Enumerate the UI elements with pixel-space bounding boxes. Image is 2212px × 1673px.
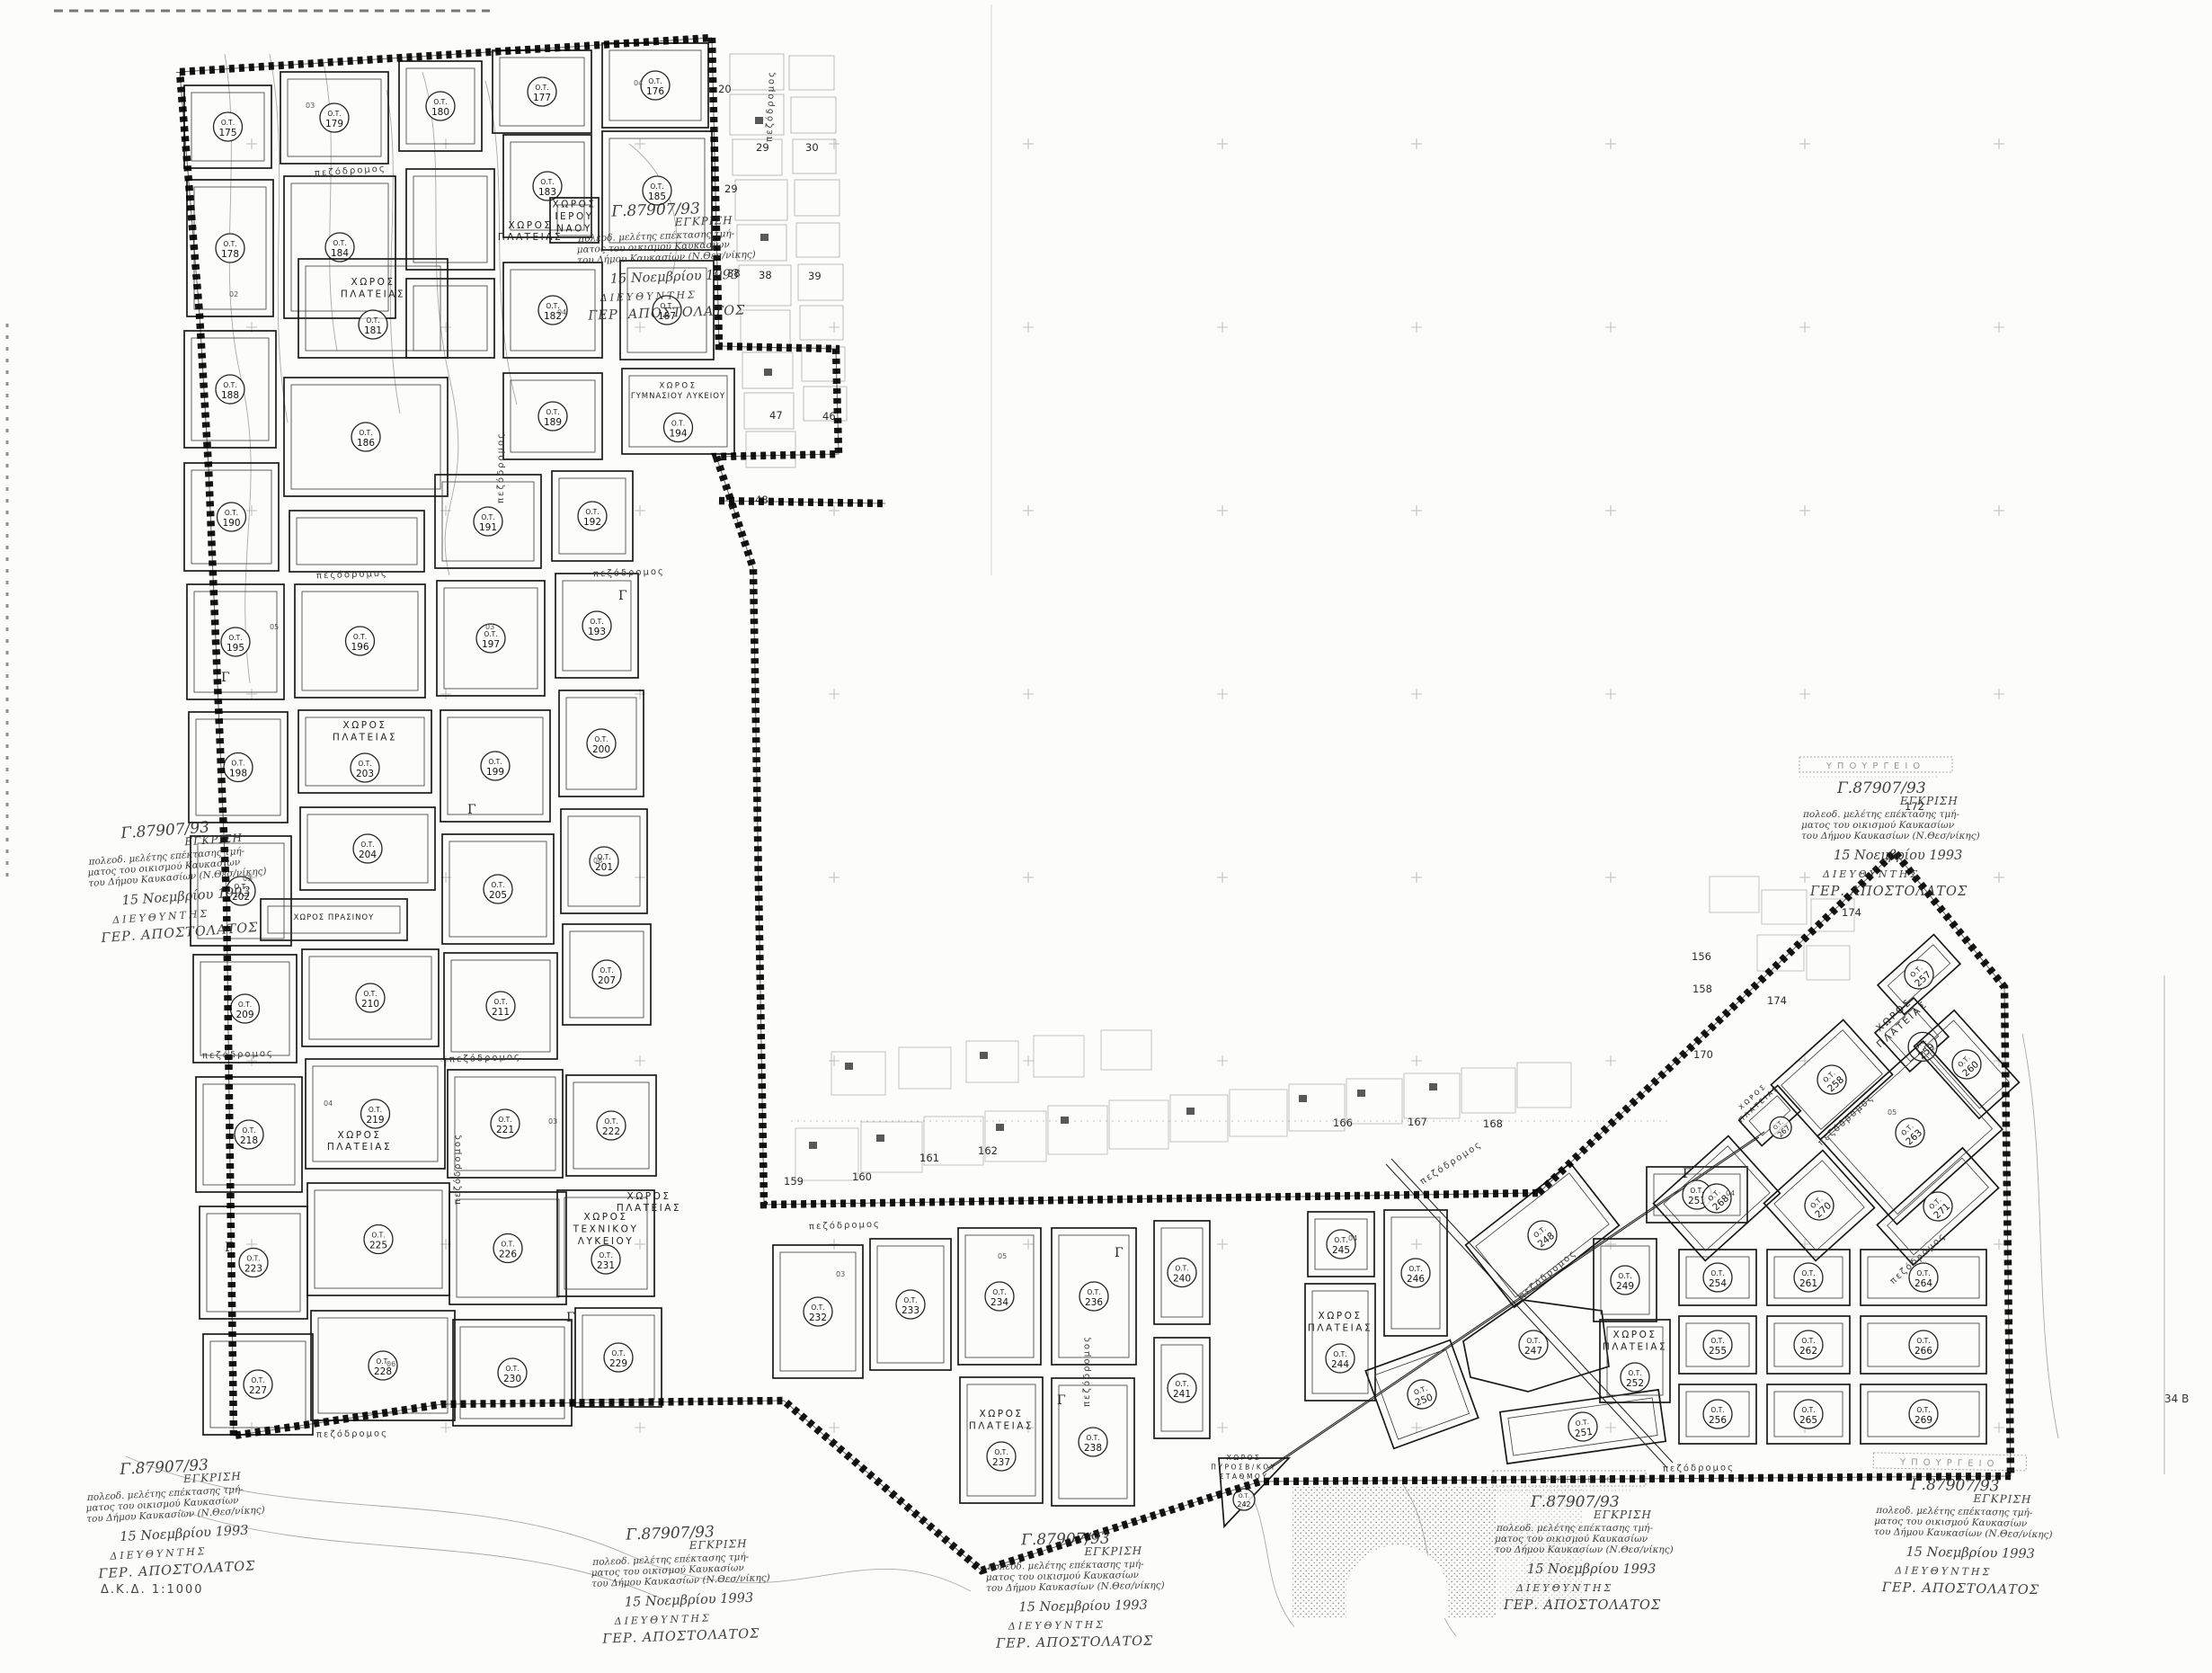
svg-text:Ο.Τ.: Ο.Τ.: [1710, 1337, 1724, 1345]
lot-number-mark: 06: [386, 1360, 395, 1368]
svg-text:Ο.Τ.: Ο.Τ.: [238, 1001, 252, 1009]
svg-text:177: 177: [533, 93, 551, 103]
scanned-town-plan-sheet: Ο.Τ.175Ο.Τ.179Ο.Τ.180Ο.Τ.177Ο.Τ.176Ο.Τ.1…: [0, 0, 2212, 1673]
svg-text:Ο.Τ.: Ο.Τ.: [333, 239, 346, 247]
block-number-badge: Ο.Τ.205: [484, 875, 512, 903]
svg-text:Ο.Τ.: Ο.Τ.: [1628, 1369, 1641, 1377]
area-label: ΠΛΑΤΕΙΑΣ: [327, 1142, 392, 1152]
svg-text:Ο.Τ.: Ο.Τ.: [225, 509, 238, 517]
existing-building: [845, 1063, 853, 1070]
map-canvas: Ο.Τ.175Ο.Τ.179Ο.Τ.180Ο.Τ.177Ο.Τ.176Ο.Τ.1…: [0, 0, 2212, 1673]
svg-text:193: 193: [588, 627, 606, 637]
block-number-badge: Ο.Τ.176: [641, 71, 670, 100]
block-number-badge: Ο.Τ.222: [597, 1111, 626, 1140]
block-number-badge: Ο.Τ.194: [664, 414, 693, 442]
block-number-badge: Ο.Τ.192: [578, 502, 607, 530]
existing-building: [980, 1052, 988, 1059]
svg-text:15 Νοεμβρίου 1993: 15 Νοεμβρίου 1993: [1906, 1544, 2035, 1562]
svg-text:15 Νοεμβρίου 1993: 15 Νοεμβρίου 1993: [1018, 1597, 1148, 1615]
svg-text:198: 198: [229, 769, 247, 779]
block-number-badge: Ο.Τ.262: [1794, 1330, 1823, 1359]
svg-text:Ο.Τ.: Ο.Τ.: [223, 381, 236, 389]
existing-building: [1186, 1108, 1195, 1115]
svg-text:222: 222: [602, 1126, 620, 1137]
block-number-badge: Ο.Τ.252: [1621, 1363, 1649, 1392]
block-number-badge: Ο.Τ.236: [1079, 1282, 1108, 1311]
svg-text:205: 205: [489, 890, 507, 901]
svg-text:190: 190: [222, 518, 240, 529]
plan-boundary-hatch: [719, 501, 885, 503]
svg-text:255: 255: [1709, 1346, 1727, 1357]
lot-number-mark: 05: [1888, 1108, 1897, 1117]
building-corner-mark: Γ: [1057, 1393, 1066, 1408]
svg-text:πολεοδ. μελέτης επέκτασης τμή-: πολεοδ. μελέτης επέκτασης τμή-: [1496, 1522, 1653, 1534]
area-label: ΙΕΡΟΥ: [555, 211, 593, 222]
svg-text:Ο.Τ.: Ο.Τ.: [1175, 1265, 1188, 1273]
svg-text:Ο.Τ.: Ο.Τ.: [600, 966, 613, 974]
area-label: ΠΛΑΤΕΙΑΣ: [341, 289, 405, 300]
block-number-badge: Ο.Τ.230: [498, 1358, 527, 1387]
area-label: ΧΩΡΟΣ: [351, 277, 395, 288]
area-label: ΠΥΡΟΣΒ/ΚΟΥ: [1211, 1464, 1276, 1472]
svg-text:254: 254: [1709, 1278, 1727, 1289]
svg-text:Ο.Τ.: Ο.Τ.: [648, 77, 662, 85]
svg-text:Ο.Τ.: Ο.Τ.: [585, 508, 599, 516]
building-corner-mark: Γ: [566, 1311, 575, 1325]
svg-text:226: 226: [499, 1250, 517, 1260]
svg-text:195: 195: [227, 643, 244, 654]
svg-text:Ο.Τ.: Ο.Τ.: [590, 618, 603, 626]
block-number-badge: Ο.Τ.237: [987, 1442, 1016, 1471]
svg-text:ΥΠΟΥΡΓΕΙΟ: ΥΠΟΥΡΓΕΙΟ: [1519, 1475, 1619, 1485]
svg-text:244: 244: [1331, 1359, 1349, 1370]
svg-text:Ο.Τ.: Ο.Τ.: [369, 1106, 382, 1114]
svg-text:194: 194: [669, 429, 687, 440]
svg-text:Ο.Τ.: Ο.Τ.: [1087, 1288, 1100, 1296]
svg-text:ΔΙΕΥΘΥΝΤΗΣ: ΔΙΕΥΘΥΝΤΗΣ: [1515, 1582, 1613, 1594]
block-number-badge: Ο.Τ.218: [235, 1120, 263, 1149]
block-number-badge: Ο.Τ.210: [356, 983, 385, 1012]
lot-number-mark: 08: [593, 857, 602, 865]
svg-text:175: 175: [218, 128, 236, 138]
block-number-badge: Ο.Τ.180: [426, 92, 455, 120]
svg-text:Ο.Τ.: Ο.Τ.: [671, 420, 685, 428]
svg-text:266: 266: [1914, 1346, 1932, 1357]
reference-number: 167: [1408, 1116, 1427, 1128]
svg-text:Ο.Τ.: Ο.Τ.: [481, 513, 494, 521]
lot-number-mark: 04: [634, 79, 643, 87]
svg-text:Ο.Τ.: Ο.Τ.: [594, 735, 608, 743]
svg-text:184: 184: [331, 248, 349, 259]
svg-text:Ο.Τ.: Ο.Τ.: [246, 1255, 260, 1263]
svg-text:232: 232: [809, 1313, 827, 1323]
reference-number: 29: [756, 141, 769, 154]
svg-text:ΕΓΚΡΙΣΗ: ΕΓΚΡΙΣΗ: [1593, 1508, 1652, 1521]
block-number-badge: Ο.Τ.195: [221, 627, 250, 656]
street-label: πεζόδρομος: [316, 1428, 388, 1439]
svg-text:ΕΓΚΡΙΣΗ: ΕΓΚΡΙΣΗ: [673, 214, 733, 228]
svg-text:179: 179: [325, 119, 343, 129]
block-number-badge: Ο.Τ.227: [244, 1370, 272, 1399]
area-label: ΣΤΑΘΜΟΥ: [1220, 1473, 1269, 1481]
lot-number-mark: 04: [557, 308, 566, 316]
block-number-badge: Ο.Τ.181: [359, 310, 387, 339]
svg-text:Ο.Τ.: Ο.Τ.: [599, 1251, 612, 1259]
svg-text:Ο.Τ.: Ο.Τ.: [1916, 1337, 1930, 1345]
svg-text:238: 238: [1084, 1443, 1102, 1454]
area-label: ΧΩΡΟΣ: [980, 1409, 1024, 1419]
svg-text:Ο.Τ.: Ο.Τ.: [1710, 1269, 1724, 1277]
reference-number: 46: [822, 410, 836, 423]
area-label: ΧΩΡΟΣ: [659, 382, 697, 391]
svg-text:256: 256: [1709, 1415, 1727, 1426]
block-number-badge: Ο.Τ.226: [493, 1234, 522, 1263]
block-number-badge: Ο.Τ.255: [1703, 1330, 1732, 1359]
lot-number-mark: 03: [548, 1117, 557, 1126]
svg-text:Ο.Τ.: Ο.Τ.: [491, 881, 504, 889]
existing-building: [764, 369, 772, 376]
svg-text:ΕΓΚΡΙΣΗ: ΕΓΚΡΙΣΗ: [1083, 1544, 1142, 1558]
svg-text:του Δήμου Καυκασίων (Ν.Θεσ/νίκ: του Δήμου Καυκασίων (Ν.Θεσ/νίκης): [1801, 830, 1980, 841]
block-number-badge: Ο.Τ.207: [592, 960, 621, 989]
svg-text:Ο.Τ.: Ο.Τ.: [498, 1116, 511, 1124]
svg-text:Ο.Τ.: Ο.Τ.: [366, 316, 379, 325]
block-number-badge: Ο.Τ.204: [353, 834, 382, 863]
block-number-badge: Ο.Τ.233: [896, 1290, 925, 1319]
block-number-badge: Ο.Τ.261: [1794, 1263, 1823, 1292]
block-number-badge: Ο.Τ.256: [1703, 1400, 1732, 1428]
svg-text:246: 246: [1407, 1274, 1425, 1285]
svg-text:Ο.Τ.: Ο.Τ.: [611, 1349, 625, 1357]
svg-text:ΥΠΟΥΡΓΕΙΟ: ΥΠΟΥΡΓΕΙΟ: [1826, 761, 1925, 771]
block-number-badge: Ο.Τ.175: [214, 112, 243, 141]
svg-text:Ο.Τ.: Ο.Τ.: [231, 760, 244, 768]
svg-text:ΕΓΚΡΙΣΗ: ΕΓΚΡΙΣΗ: [688, 1537, 747, 1552]
block-number-badge: Ο.Τ.238: [1079, 1428, 1107, 1456]
reference-number: 47: [769, 409, 783, 422]
svg-text:207: 207: [598, 975, 616, 986]
block-number-badge: Ο.Τ.179: [320, 103, 349, 132]
svg-text:240: 240: [1173, 1274, 1191, 1285]
svg-text:192: 192: [583, 517, 601, 528]
lot-number-mark: 05: [270, 623, 279, 631]
reference-number: 29: [724, 182, 738, 195]
svg-text:ματος του οικισμού Καυκασίων: ματος του οικισμού Καυκασίων: [1801, 819, 1955, 831]
svg-text:203: 203: [356, 769, 374, 779]
svg-text:πολεοδ. μελέτης επέκτασης τμή-: πολεοδ. μελέτης επέκτασης τμή-: [1802, 808, 1959, 820]
block-number-badge: Ο.Τ.240: [1168, 1259, 1196, 1287]
existing-building: [1357, 1090, 1365, 1097]
block-number-badge: Ο.Τ.193: [582, 611, 611, 640]
svg-text:ΔΙΕΥΘΥΝΤΗΣ: ΔΙΕΥΘΥΝΤΗΣ: [1008, 1619, 1106, 1633]
block-number-badge: Ο.Τ.191: [474, 507, 502, 536]
svg-text:Ο.Τ.: Ο.Τ.: [488, 758, 502, 766]
svg-text:221: 221: [496, 1125, 514, 1135]
block-number-badge: Ο.Τ.183: [533, 172, 562, 200]
reference-number: 156: [1692, 950, 1711, 963]
existing-building: [1299, 1095, 1307, 1102]
svg-text:233: 233: [902, 1305, 919, 1316]
svg-text:ΕΓΚΡΙΣΗ: ΕΓΚΡΙΣΗ: [1972, 1492, 2031, 1506]
svg-text:188: 188: [221, 390, 239, 401]
svg-text:Ο.Τ.: Ο.Τ.: [992, 1288, 1006, 1296]
svg-text:178: 178: [221, 249, 239, 260]
svg-text:236: 236: [1085, 1297, 1103, 1308]
street-label: πεζόδρομος: [452, 1133, 463, 1205]
svg-text:181: 181: [364, 325, 382, 336]
block-number-badge: Ο.Τ.266: [1909, 1330, 1938, 1359]
block-number-badge: Ο.Τ.231: [591, 1245, 620, 1274]
svg-text:Ο.Τ.: Ο.Τ.: [1618, 1272, 1631, 1280]
svg-text:Ο.Τ.: Ο.Τ.: [359, 429, 372, 437]
block-number-badge: Ο.Τ.247: [1519, 1330, 1548, 1359]
reference-number: 168: [1483, 1117, 1503, 1130]
svg-text:264: 264: [1914, 1278, 1932, 1289]
svg-text:227: 227: [249, 1385, 267, 1396]
svg-text:Ο.Τ.: Ο.Τ.: [353, 633, 367, 641]
lot-number-mark: 03: [485, 623, 494, 631]
block-number-badge: Ο.Τ.265: [1794, 1400, 1823, 1428]
area-label: ΧΩΡΟΣ: [1613, 1330, 1657, 1340]
street-label: πεζόδρομος: [1081, 1335, 1092, 1407]
block-number-badge: Ο.Τ.221: [491, 1109, 520, 1138]
svg-text:223: 223: [244, 1264, 262, 1275]
svg-text:Ο.Τ.: Ο.Τ.: [1916, 1269, 1930, 1277]
svg-text:Ο.Τ.: Ο.Τ.: [371, 1232, 385, 1240]
existing-building: [760, 234, 768, 241]
block-number-badge: Ο.Τ.219: [361, 1099, 390, 1128]
svg-text:Ο.Τ.: Ο.Τ.: [903, 1296, 917, 1304]
svg-text:Ο.Τ.: Ο.Τ.: [501, 1241, 514, 1249]
svg-text:Ο.Τ.: Ο.Τ.: [433, 98, 447, 106]
area-label: ΠΛΑΤΕΙΑΣ: [1603, 1342, 1667, 1353]
reference-number: 38: [759, 269, 772, 281]
svg-text:Ο.Τ.: Ο.Τ.: [1526, 1337, 1540, 1345]
block-number-badge: Ο.Τ.244: [1326, 1344, 1355, 1373]
svg-text:Ο.Τ.: Ο.Τ.: [360, 841, 374, 849]
existing-building: [996, 1124, 1004, 1131]
svg-text:Ο.Τ.: Ο.Τ.: [493, 998, 507, 1006]
svg-text:209: 209: [235, 1010, 253, 1020]
svg-text:197: 197: [482, 639, 500, 650]
svg-text:Ο.Τ.: Ο.Τ.: [363, 990, 377, 998]
lot-number-mark: 05: [998, 1252, 1007, 1260]
svg-text:Ο.Τ.: Ο.Τ.: [1801, 1406, 1815, 1414]
svg-text:183: 183: [538, 187, 556, 198]
svg-text:Ο.Τ.: Ο.Τ.: [811, 1304, 824, 1312]
svg-text:Ο.Τ.: Ο.Τ.: [1690, 1187, 1703, 1195]
existing-building: [876, 1135, 884, 1142]
block-number-badge: Ο.Τ.241: [1168, 1374, 1196, 1402]
svg-text:Ο.Τ.: Ο.Τ.: [540, 178, 554, 186]
svg-text:237: 237: [992, 1457, 1010, 1468]
svg-text:Ο.Τ.: Ο.Τ.: [546, 408, 559, 416]
reference-number: 166: [1333, 1117, 1353, 1129]
svg-text:Ο.Τ.: Ο.Τ.: [327, 110, 341, 118]
svg-text:Ο.Τ.: Ο.Τ.: [994, 1448, 1008, 1456]
svg-text:210: 210: [361, 999, 379, 1010]
block-number-badge: Ο.Τ.229: [604, 1343, 633, 1372]
svg-text:Ο.Τ.: Ο.Τ.: [228, 634, 242, 642]
svg-text:269: 269: [1914, 1415, 1932, 1426]
svg-text:189: 189: [544, 417, 562, 428]
reference-number: 160: [852, 1170, 872, 1183]
block-number-badge: Ο.Τ.200: [587, 729, 616, 758]
area-label: ΧΩΡΟΣ: [627, 1191, 671, 1202]
svg-text:204: 204: [359, 850, 377, 860]
svg-text:Ο.Τ.: Ο.Τ.: [650, 182, 663, 191]
area-label: ΧΩΡΟΣ: [343, 720, 387, 731]
block-number-badge: Ο.Τ.223: [239, 1249, 268, 1277]
svg-text:ΓΕΡ. ΑΠΟΣΤΟΛΑΤΟΣ: ΓΕΡ. ΑΠΟΣΤΟΛΑΤΟΣ: [1503, 1598, 1661, 1613]
street-label: πεζόδρομος: [495, 432, 506, 503]
svg-text:218: 218: [240, 1135, 258, 1146]
svg-text:247: 247: [1524, 1346, 1542, 1357]
building-corner-mark: Γ: [221, 671, 230, 685]
block-number-badge: Ο.Τ.189: [538, 402, 567, 431]
svg-text:15 Νοεμβρίου 1993: 15 Νοεμβρίου 1993: [1834, 848, 1962, 863]
svg-text:Ο.Τ.: Ο.Τ.: [1239, 1493, 1249, 1499]
block-number-badge: Ο.Τ.209: [231, 994, 260, 1023]
svg-text:ΥΠΟΥΡΓΕΙΟ: ΥΠΟΥΡΓΕΙΟ: [1899, 1457, 2000, 1469]
lot-number-mark: 02: [229, 290, 238, 298]
svg-text:Ο.Τ.: Ο.Τ.: [604, 1117, 617, 1126]
svg-text:Ο.Τ.: Ο.Τ.: [251, 1376, 264, 1384]
existing-building: [1429, 1083, 1437, 1090]
lot-number-mark: 04: [324, 1099, 333, 1108]
svg-text:229: 229: [609, 1358, 627, 1369]
building-corner-mark: Γ: [467, 803, 476, 817]
building-corner-mark: Γ: [618, 589, 627, 603]
svg-text:ΔΙΕΥΘΥΝΤΗΣ: ΔΙΕΥΘΥΝΤΗΣ: [1894, 1564, 1992, 1578]
svg-text:ματος του οικισμού Καυκασίων: ματος του οικισμού Καυκασίων: [1495, 1533, 1648, 1544]
scale-note: Δ.Κ.Δ. 1:1000: [101, 1583, 204, 1597]
block-number-badge: Ο.Τ.246: [1401, 1259, 1430, 1287]
svg-text:Ο.Τ.: Ο.Τ.: [505, 1365, 519, 1373]
svg-text:Ο.Τ.: Ο.Τ.: [1334, 1236, 1347, 1244]
reference-number: 174: [1767, 994, 1787, 1007]
area-label: ΠΛΑΤΕΙΑΣ: [969, 1421, 1034, 1432]
svg-text:Ο.Τ.: Ο.Τ.: [221, 119, 235, 127]
existing-building: [1061, 1117, 1069, 1124]
lot-number-mark: 04: [1726, 1189, 1735, 1197]
sheet-side-label: 34 Β: [2164, 1393, 2189, 1405]
block-number-badge: Ο.Τ.203: [351, 753, 379, 782]
reference-number: 170: [1693, 1048, 1713, 1061]
svg-text:225: 225: [369, 1241, 387, 1251]
svg-text:265: 265: [1799, 1415, 1817, 1426]
area-label: ΧΩΡΟΣ: [509, 220, 553, 231]
block-number-badge: Ο.Τ.196: [346, 627, 375, 655]
svg-text:Ο.Τ.: Ο.Τ.: [1801, 1337, 1815, 1345]
svg-text:180: 180: [431, 107, 449, 118]
area-label: ΧΩΡΟΣ: [553, 199, 597, 209]
building-corner-mark: Γ: [1683, 1167, 1692, 1181]
reference-number: 20: [718, 83, 732, 95]
svg-text:230: 230: [503, 1374, 521, 1384]
lot-number-mark: 04: [1348, 1234, 1357, 1242]
svg-text:200: 200: [592, 744, 610, 755]
area-label: ΤΕΧΝΙΚΟΥ: [573, 1224, 639, 1235]
block-number-badge: Ο.Τ.225: [364, 1225, 393, 1254]
svg-text:Ο.Τ.: Ο.Τ.: [1333, 1350, 1346, 1358]
area-label: ΠΛΑΤΕΙΑΣ: [498, 232, 563, 243]
svg-text:186: 186: [357, 438, 375, 449]
lot-number-mark: 03: [306, 102, 315, 110]
reference-number: 159: [784, 1175, 804, 1188]
svg-text:ΓΕΡ. ΑΠΟΣΤΟΛΑΤΟΣ: ΓΕΡ. ΑΠΟΣΤΟΛΑΤΟΣ: [1881, 1580, 2039, 1597]
svg-text:Ο.Τ.: Ο.Τ.: [484, 630, 497, 638]
block-number-badge: Ο.Τ.178: [216, 234, 244, 263]
svg-text:211: 211: [492, 1007, 510, 1018]
svg-text:245: 245: [1332, 1245, 1350, 1256]
svg-text:231: 231: [597, 1260, 615, 1271]
svg-text:Ο.Τ.: Ο.Τ.: [358, 760, 371, 768]
svg-text:234: 234: [991, 1297, 1008, 1308]
area-label: ΧΩΡΟΣ: [338, 1130, 382, 1141]
block-number-badge: Ο.Τ.184: [325, 233, 354, 262]
existing-building: [809, 1142, 817, 1149]
svg-text:ΕΓΚΡΙΣΗ: ΕΓΚΡΙΣΗ: [1899, 795, 1959, 807]
reference-number: 162: [978, 1144, 998, 1157]
block-number-badge: Ο.Τ.234: [985, 1282, 1014, 1311]
svg-text:196: 196: [351, 642, 369, 653]
svg-text:249: 249: [1616, 1281, 1634, 1292]
svg-text:Ο.Τ.: Ο.Τ.: [242, 1126, 255, 1135]
svg-text:199: 199: [486, 767, 504, 778]
block-number-badge: Ο.Τ.254: [1703, 1263, 1732, 1292]
svg-text:Ο.Τ.: Ο.Τ.: [1916, 1406, 1930, 1414]
svg-text:ΓΕΡ. ΑΠΟΣΤΟΛΑΤΟΣ: ΓΕΡ. ΑΠΟΣΤΟΛΑΤΟΣ: [1809, 885, 1968, 899]
svg-text:Ο.Τ.: Ο.Τ.: [1175, 1380, 1188, 1388]
svg-text:261: 261: [1799, 1278, 1817, 1289]
svg-text:Ο.Τ.: Ο.Τ.: [1801, 1269, 1815, 1277]
svg-text:241: 241: [1173, 1389, 1191, 1400]
lot-number-mark: 03: [836, 1270, 845, 1278]
area-label: ΠΛΑΤΕΙΑΣ: [617, 1203, 681, 1214]
existing-building: [755, 117, 763, 124]
svg-text:262: 262: [1799, 1346, 1817, 1357]
block-number-badge: Ο.Τ.199: [481, 752, 510, 780]
street-label: πεζόδρομος: [1663, 1462, 1735, 1473]
svg-text:191: 191: [479, 522, 497, 533]
svg-text:219: 219: [366, 1115, 384, 1126]
block-number-badge: Ο.Τ.211: [486, 992, 515, 1020]
area-label: ΠΛΑΤΕΙΑΣ: [333, 733, 397, 743]
svg-text:Ο.Τ.: Ο.Τ.: [1710, 1406, 1724, 1414]
area-label: ΧΩΡΟΣ ΠΡΑΣΙΝΟΥ: [294, 913, 375, 922]
area-label: ΧΩΡΟΣ: [1227, 1454, 1262, 1462]
block-number-badge: Ο.Τ.186: [351, 423, 380, 451]
svg-text:Ο.Τ.: Ο.Τ.: [1408, 1265, 1422, 1273]
svg-text:ΔΙΕΥΘΥΝΤΗΣ: ΔΙΕΥΘΥΝΤΗΣ: [1822, 868, 1920, 880]
area-label: ΧΩΡΟΣ: [1319, 1311, 1363, 1321]
block-number-badge: Ο.Τ.177: [528, 77, 556, 106]
block-number-badge: Ο.Τ.198: [224, 753, 253, 782]
svg-text:15 Νοεμβρίου 1993: 15 Νοεμβρίου 1993: [1527, 1562, 1656, 1577]
building-corner-mark: Γ: [1115, 1246, 1124, 1260]
svg-text:Ο.Τ.: Ο.Τ.: [535, 84, 548, 92]
block-number-badge: Ο.Τ.190: [218, 503, 246, 531]
svg-text:176: 176: [646, 86, 664, 97]
svg-text:242: 242: [1237, 1500, 1250, 1508]
block-number-badge: Ο.Τ.269: [1909, 1400, 1938, 1428]
area-label: ΓΥΜΝΑΣΙΟΥ ΛΥΚΕΙΟΥ: [631, 392, 725, 401]
reference-number: 30: [805, 141, 819, 154]
reference-number: 39: [808, 270, 822, 282]
reference-number: 174: [1842, 906, 1861, 919]
reference-number: 161: [919, 1152, 939, 1164]
